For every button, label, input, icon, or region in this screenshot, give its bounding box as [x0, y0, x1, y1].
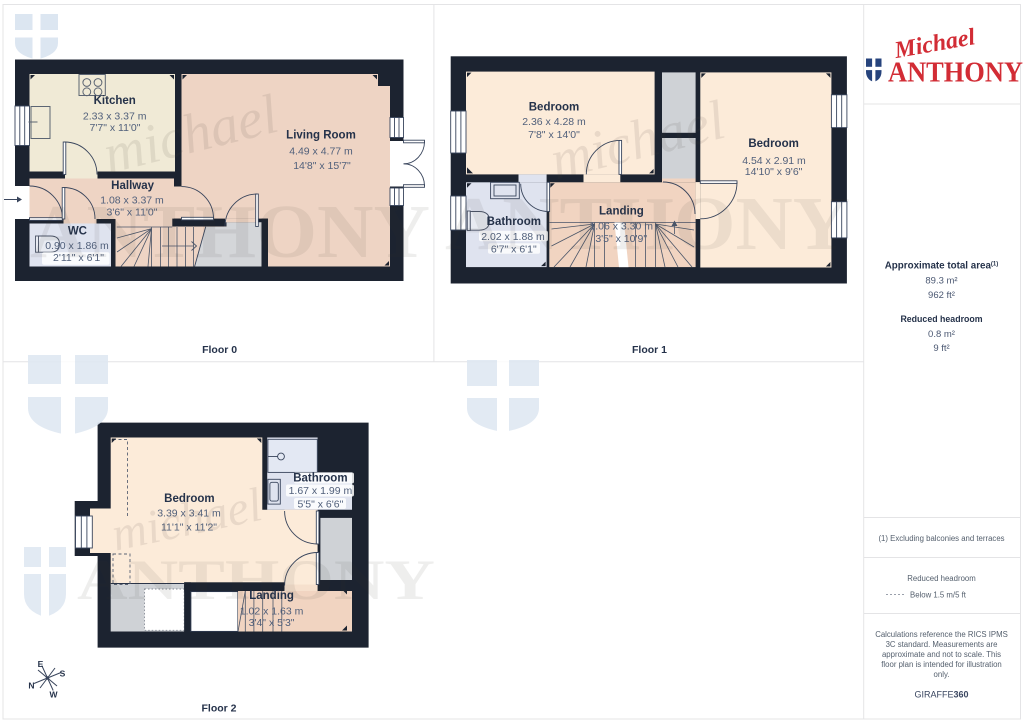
svg-text:9 ft²: 9 ft²	[933, 343, 949, 354]
svg-text:14'8" x 15'7": 14'8" x 15'7"	[293, 160, 351, 172]
svg-text:Floor 1: Floor 1	[632, 344, 667, 356]
svg-text:ANTHONY: ANTHONY	[445, 182, 850, 266]
svg-text:3C standard. Measurements are: 3C standard. Measurements are	[886, 640, 998, 649]
svg-text:Reduced headroom: Reduced headroom	[907, 574, 976, 583]
svg-text:3'4" x 5'3": 3'4" x 5'3"	[249, 617, 295, 629]
svg-text:ANTHONY: ANTHONY	[888, 57, 1023, 89]
svg-text:S: S	[60, 669, 66, 679]
svg-text:1.67 x 1.99 m: 1.67 x 1.99 m	[289, 485, 353, 497]
svg-text:ANTHONY: ANTHONY	[30, 190, 430, 274]
svg-text:14'10" x 9'6": 14'10" x 9'6"	[745, 166, 803, 178]
svg-text:Bedroom: Bedroom	[748, 138, 798, 150]
svg-text:Kitchen: Kitchen	[94, 95, 136, 107]
svg-text:E: E	[38, 659, 44, 669]
svg-text:4.49 x 4.77 m: 4.49 x 4.77 m	[289, 145, 353, 157]
svg-text:floor plan is intended for ill: floor plan is intended for illustration	[881, 660, 1002, 669]
svg-text:Bathroom: Bathroom	[293, 473, 347, 485]
svg-text:Below 1.5 m/5 ft: Below 1.5 m/5 ft	[910, 591, 967, 600]
svg-text:GIRAFFE360: GIRAFFE360	[914, 690, 968, 700]
svg-text:Floor 2: Floor 2	[201, 703, 236, 715]
svg-text:ANTHONY: ANTHONY	[77, 549, 435, 612]
svg-text:89.3 m²: 89.3 m²	[925, 276, 957, 287]
svg-text:only.: only.	[934, 670, 950, 679]
svg-text:(1) Excluding balconies and te: (1) Excluding balconies and terraces	[878, 534, 1004, 543]
svg-text:Living Room: Living Room	[286, 130, 356, 142]
svg-text:Reduced headroom: Reduced headroom	[900, 314, 982, 324]
svg-text:approximate and not to scale.: approximate and not to scale. This	[882, 650, 1001, 659]
svg-text:0.8 m²: 0.8 m²	[928, 329, 955, 340]
svg-text:962 ft²: 962 ft²	[928, 290, 955, 301]
svg-text:5'5" x 6'6": 5'5" x 6'6"	[297, 499, 343, 511]
svg-text:N: N	[28, 681, 34, 691]
svg-text:Floor 0: Floor 0	[202, 344, 237, 356]
svg-text:Approximate total area(1): Approximate total area(1)	[885, 261, 999, 272]
svg-text:W: W	[49, 690, 58, 700]
svg-text:Calculations reference the RIC: Calculations reference the RICS IPMS	[875, 630, 1008, 639]
svg-text:Bedroom: Bedroom	[529, 102, 579, 114]
